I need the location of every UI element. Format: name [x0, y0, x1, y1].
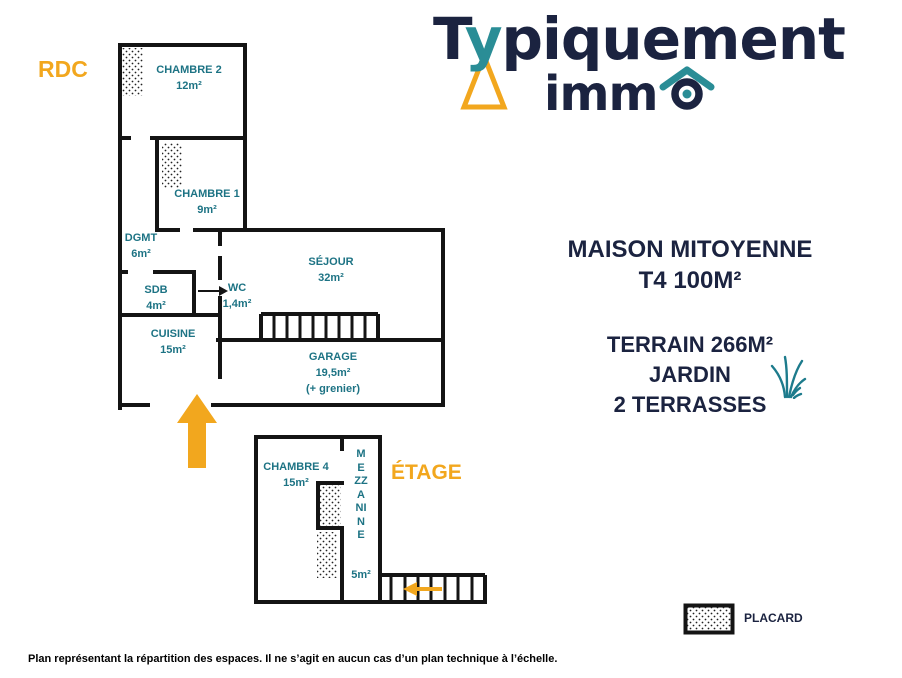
stairs-rdc [261, 314, 378, 340]
property-title: MAISON MITOYENNE T4 100M² [558, 234, 822, 296]
placard-chambre4 [320, 485, 341, 526]
logo-letter-y: y [465, 5, 502, 73]
placard-chambre1 [162, 143, 182, 188]
stairs-arrow-icon [403, 582, 442, 596]
room-label-chambre2: CHAMBRE 2 12m² [134, 62, 244, 94]
room-label-dgmt: DGMT 6m² [112, 230, 170, 262]
entrance-arrow-icon [175, 392, 220, 470]
room-label-cuisine: CUISINE 15m² [123, 326, 223, 358]
logo-rest: piquement [502, 5, 845, 73]
logo-wordmark: Typiquement [433, 10, 845, 68]
logo-letter-t: T [433, 5, 465, 73]
placard-legend-swatch [683, 603, 735, 635]
room-label-sdb: SDB 4m² [127, 282, 185, 314]
placard-legend-label: PLACARD [744, 611, 803, 625]
rdc-title: RDC [38, 56, 88, 83]
room-label-wc: WC 1,4m² [208, 280, 266, 312]
room-label-chambre1: CHAMBRE 1 9m² [152, 186, 262, 218]
room-label-sejour: SÉJOUR 32m² [281, 254, 381, 286]
property-title-line2: T4 100M² [558, 265, 822, 296]
disclaimer-text: Plan représentant la répartition des esp… [28, 653, 557, 665]
grass-icon [766, 353, 808, 399]
room-label-chambre4: CHAMBRE 4 15m² [246, 459, 346, 491]
house-o-icon [659, 66, 715, 110]
logo-immo: imm [544, 70, 715, 118]
floor-plan-page: Typiquement imm RDC ÉTAGE [0, 0, 902, 678]
room-label-mezzanine: MEZZANINE [354, 448, 368, 543]
placard-mezzanine [317, 532, 337, 578]
room-label-garage: GARAGE 19,5m² (+ grenier) [283, 349, 383, 397]
room-area-mezzanine: 5m² [346, 567, 376, 583]
property-title-line1: MAISON MITOYENNE [558, 234, 822, 265]
logo-immo-prefix: imm [544, 70, 657, 118]
